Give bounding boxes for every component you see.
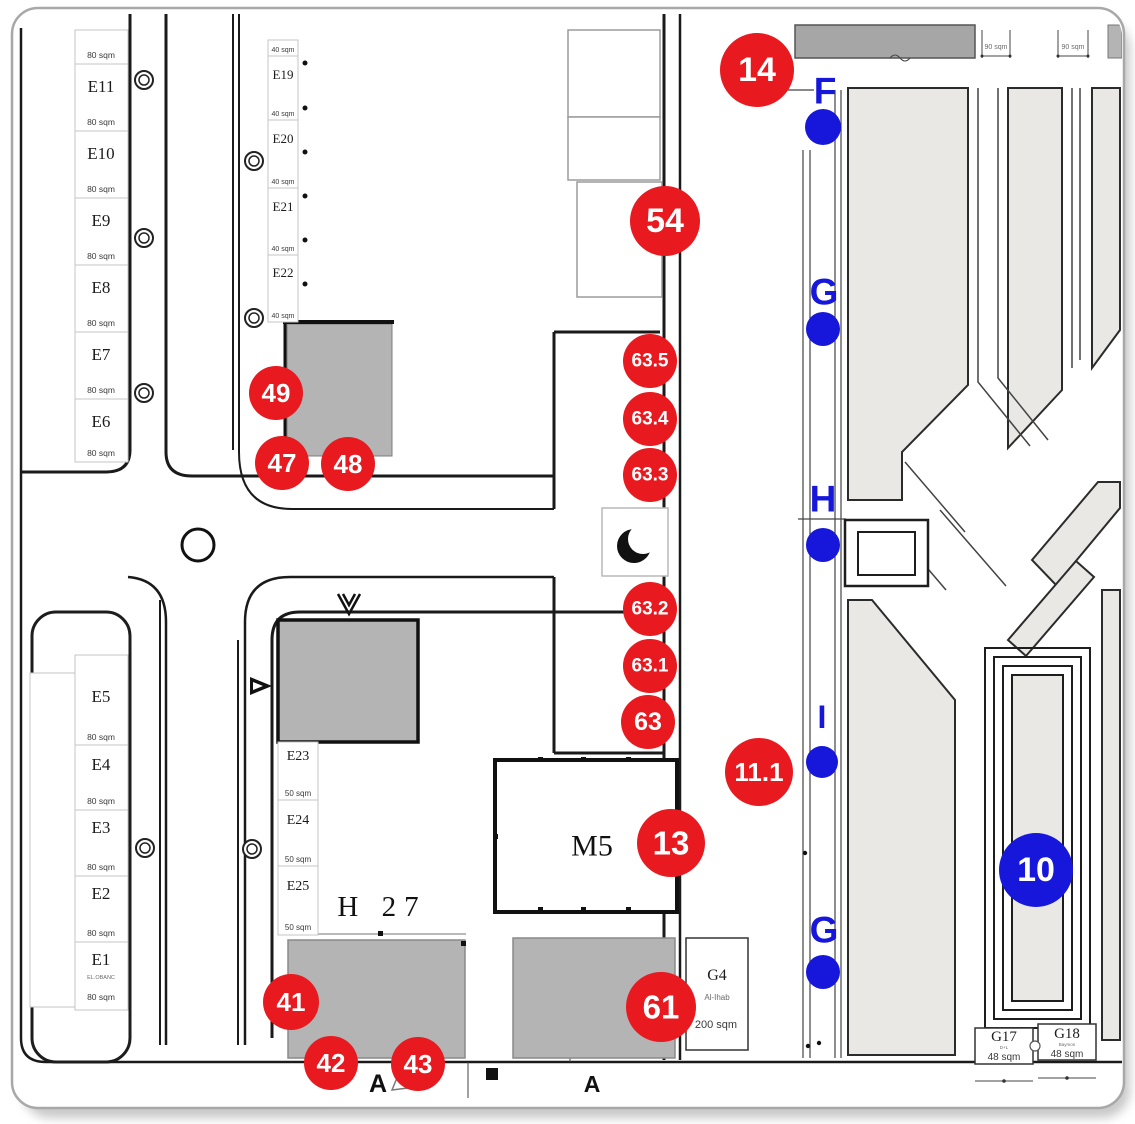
red-marker-label: 63.2 bbox=[632, 599, 669, 620]
red-marker-63[interactable]: 63 bbox=[621, 695, 675, 749]
g18-name: G18 bbox=[1054, 1026, 1080, 1042]
plot-area-label: 40 sqm bbox=[272, 246, 295, 253]
blue-circle-10[interactable]: 10 bbox=[999, 833, 1073, 907]
red-marker-61[interactable]: 61 bbox=[626, 972, 696, 1042]
red-marker-63-1[interactable]: 63.1 bbox=[623, 639, 677, 693]
plot-e19: E19 bbox=[273, 67, 294, 82]
building-top-strip bbox=[795, 25, 975, 58]
block-lower-left: E5 80 sqm E4 80 sqm E3 80 sqm E2 80 sqm … bbox=[30, 612, 130, 1062]
blue-letter-f[interactable]: F bbox=[814, 71, 837, 112]
red-marker-label: 63.3 bbox=[632, 465, 669, 486]
red-marker-label: 49 bbox=[262, 378, 291, 408]
building-top-right-strip bbox=[1108, 25, 1122, 58]
plot-e1-note: EL.OBANC bbox=[87, 975, 115, 981]
plot-e5: E5 bbox=[92, 687, 111, 706]
red-marker-label: 63.5 bbox=[632, 351, 669, 372]
g17-name: G17 bbox=[991, 1029, 1017, 1045]
red-marker-41[interactable]: 41 bbox=[263, 974, 319, 1030]
red-marker-63-2[interactable]: 63.2 bbox=[623, 582, 677, 636]
red-marker-label: 63 bbox=[634, 708, 662, 736]
plot-area-label: 40 sqm bbox=[272, 47, 295, 54]
plot-area-label: 80 sqm bbox=[87, 992, 115, 1002]
plot-e21: E21 bbox=[273, 199, 294, 214]
red-marker-label: 43 bbox=[404, 1049, 433, 1079]
plot-e6: E6 bbox=[92, 412, 111, 431]
plot-e1: E1 bbox=[92, 950, 111, 969]
plot-e22: E22 bbox=[273, 265, 294, 280]
dim-left-label: 90 sqm bbox=[985, 44, 1008, 51]
roundabout-circle bbox=[182, 529, 214, 561]
plot-e3: E3 bbox=[92, 818, 111, 837]
h27-label: H 27 bbox=[337, 891, 426, 923]
plot-g4: G4 Al-Ihab 200 sqm bbox=[686, 938, 748, 1050]
g17-note: D+L bbox=[1000, 1045, 1009, 1050]
plot-e4: E4 bbox=[92, 755, 111, 774]
plot-area-label: 80 sqm bbox=[87, 448, 115, 458]
plot-area-label: 40 sqm bbox=[272, 313, 295, 320]
blue-letter-g2[interactable]: G bbox=[810, 910, 839, 951]
plot-area-label: 80 sqm bbox=[87, 862, 115, 872]
red-marker-54[interactable]: 54 bbox=[630, 186, 700, 256]
plot-area-label: 80 sqm bbox=[87, 385, 115, 395]
north-arrow-a1: A bbox=[369, 1070, 387, 1098]
red-marker-label: 13 bbox=[653, 825, 690, 862]
red-marker-label: 54 bbox=[646, 202, 684, 240]
plot-e2: E2 bbox=[92, 884, 111, 903]
red-marker-13[interactable]: 13 bbox=[637, 809, 705, 877]
red-marker-label: 47 bbox=[268, 448, 297, 478]
m5-label: M5 bbox=[571, 830, 613, 863]
plot-e25: E25 bbox=[287, 879, 310, 894]
blue-letter-i[interactable]: I bbox=[818, 699, 827, 735]
red-marker-label: 48 bbox=[334, 449, 363, 479]
plot-area-label: 50 sqm bbox=[285, 923, 312, 932]
plot-e7: E7 bbox=[92, 345, 111, 364]
white-parcel-boxes bbox=[568, 30, 662, 297]
red-marker-42[interactable]: 42 bbox=[304, 1036, 358, 1090]
plot-area-label: 80 sqm bbox=[87, 928, 115, 938]
g18-area: 48 sqm bbox=[1051, 1049, 1084, 1060]
red-marker-48[interactable]: 48 bbox=[321, 437, 375, 491]
plot-e23: E23 bbox=[287, 749, 310, 764]
plot-column-e-upper: 80 sqm E11 80 sqm E10 80 sqm E9 80 sqm E… bbox=[75, 30, 128, 462]
plot-e20: E20 bbox=[273, 131, 294, 146]
blue-letter-h[interactable]: H bbox=[810, 479, 837, 520]
site-plan-page: M5 90 sqm 90 sqm 80 bbox=[0, 0, 1135, 1124]
red-marker-11-1[interactable]: 11.1 bbox=[725, 738, 793, 806]
plot-area-label: 40 sqm bbox=[272, 111, 295, 118]
blue-letter-g1[interactable]: G bbox=[810, 272, 839, 313]
g17-area: 48 sqm bbox=[988, 1052, 1021, 1063]
red-marker-label: 63.1 bbox=[632, 656, 669, 677]
plot-area-label: 50 sqm bbox=[285, 789, 312, 798]
red-marker-label: 63.4 bbox=[632, 409, 669, 430]
plot-e9: E9 bbox=[92, 211, 111, 230]
g4-name: G4 bbox=[707, 967, 727, 984]
g4-area: 200 sqm bbox=[695, 1019, 737, 1031]
blue-point-i[interactable] bbox=[806, 746, 838, 778]
plot-area-label: 80 sqm bbox=[87, 251, 115, 261]
red-marker-label: 41 bbox=[277, 987, 306, 1017]
red-marker-47[interactable]: 47 bbox=[255, 436, 309, 490]
plot-area-label: 80 sqm bbox=[87, 318, 115, 328]
plot-area-label: 80 sqm bbox=[87, 117, 115, 127]
small-circle-g17-g18 bbox=[1030, 1041, 1040, 1051]
plot-e11: E11 bbox=[88, 77, 115, 96]
red-marker-14[interactable]: 14 bbox=[720, 33, 794, 107]
black-square-mark bbox=[486, 1068, 498, 1080]
plot-area-label: 80 sqm bbox=[87, 796, 115, 806]
plot-e8: E8 bbox=[92, 278, 111, 297]
plot-e10: E10 bbox=[87, 144, 114, 163]
red-marker-63-3[interactable]: 63.3 bbox=[623, 448, 677, 502]
mosque-box bbox=[602, 508, 668, 576]
north-arrow-a2: A bbox=[584, 1071, 601, 1097]
blue-circle-10-label: 10 bbox=[1017, 851, 1055, 889]
red-marker-63-5[interactable]: 63.5 bbox=[623, 334, 677, 388]
plot-area-label: 80 sqm bbox=[87, 184, 115, 194]
plot-area-label: 80 sqm bbox=[87, 732, 115, 742]
red-marker-label: 11.1 bbox=[734, 757, 783, 787]
g4-owner: Al-Ihab bbox=[704, 993, 730, 1002]
plot-e24: E24 bbox=[287, 813, 310, 828]
g18-note: Baymon bbox=[1059, 1042, 1076, 1047]
red-marker-43[interactable]: 43 bbox=[391, 1037, 445, 1091]
building-block-e23 bbox=[278, 620, 418, 742]
red-marker-label: 61 bbox=[643, 989, 680, 1026]
blue-point-g1[interactable] bbox=[806, 312, 840, 346]
red-marker-label: 42 bbox=[317, 1048, 346, 1078]
red-marker-label: 14 bbox=[738, 51, 776, 89]
red-marker-49[interactable]: 49 bbox=[249, 366, 303, 420]
plot-area-label: 50 sqm bbox=[285, 855, 312, 864]
park-square-inner bbox=[858, 532, 915, 575]
blue-point-g2[interactable] bbox=[806, 955, 840, 989]
plot-column-e23-e25: E23 50 sqm E24 50 sqm E25 50 sqm bbox=[278, 742, 318, 935]
plot-area-label: 40 sqm bbox=[272, 179, 295, 186]
site-plan-map: M5 90 sqm 90 sqm 80 bbox=[0, 0, 1135, 1124]
blue-point-h[interactable] bbox=[806, 528, 840, 562]
red-marker-63-4[interactable]: 63.4 bbox=[623, 392, 677, 446]
dim-right-label: 90 sqm bbox=[1062, 44, 1085, 51]
blue-point-f[interactable] bbox=[805, 109, 841, 145]
plot-area-label: 80 sqm bbox=[87, 50, 115, 60]
